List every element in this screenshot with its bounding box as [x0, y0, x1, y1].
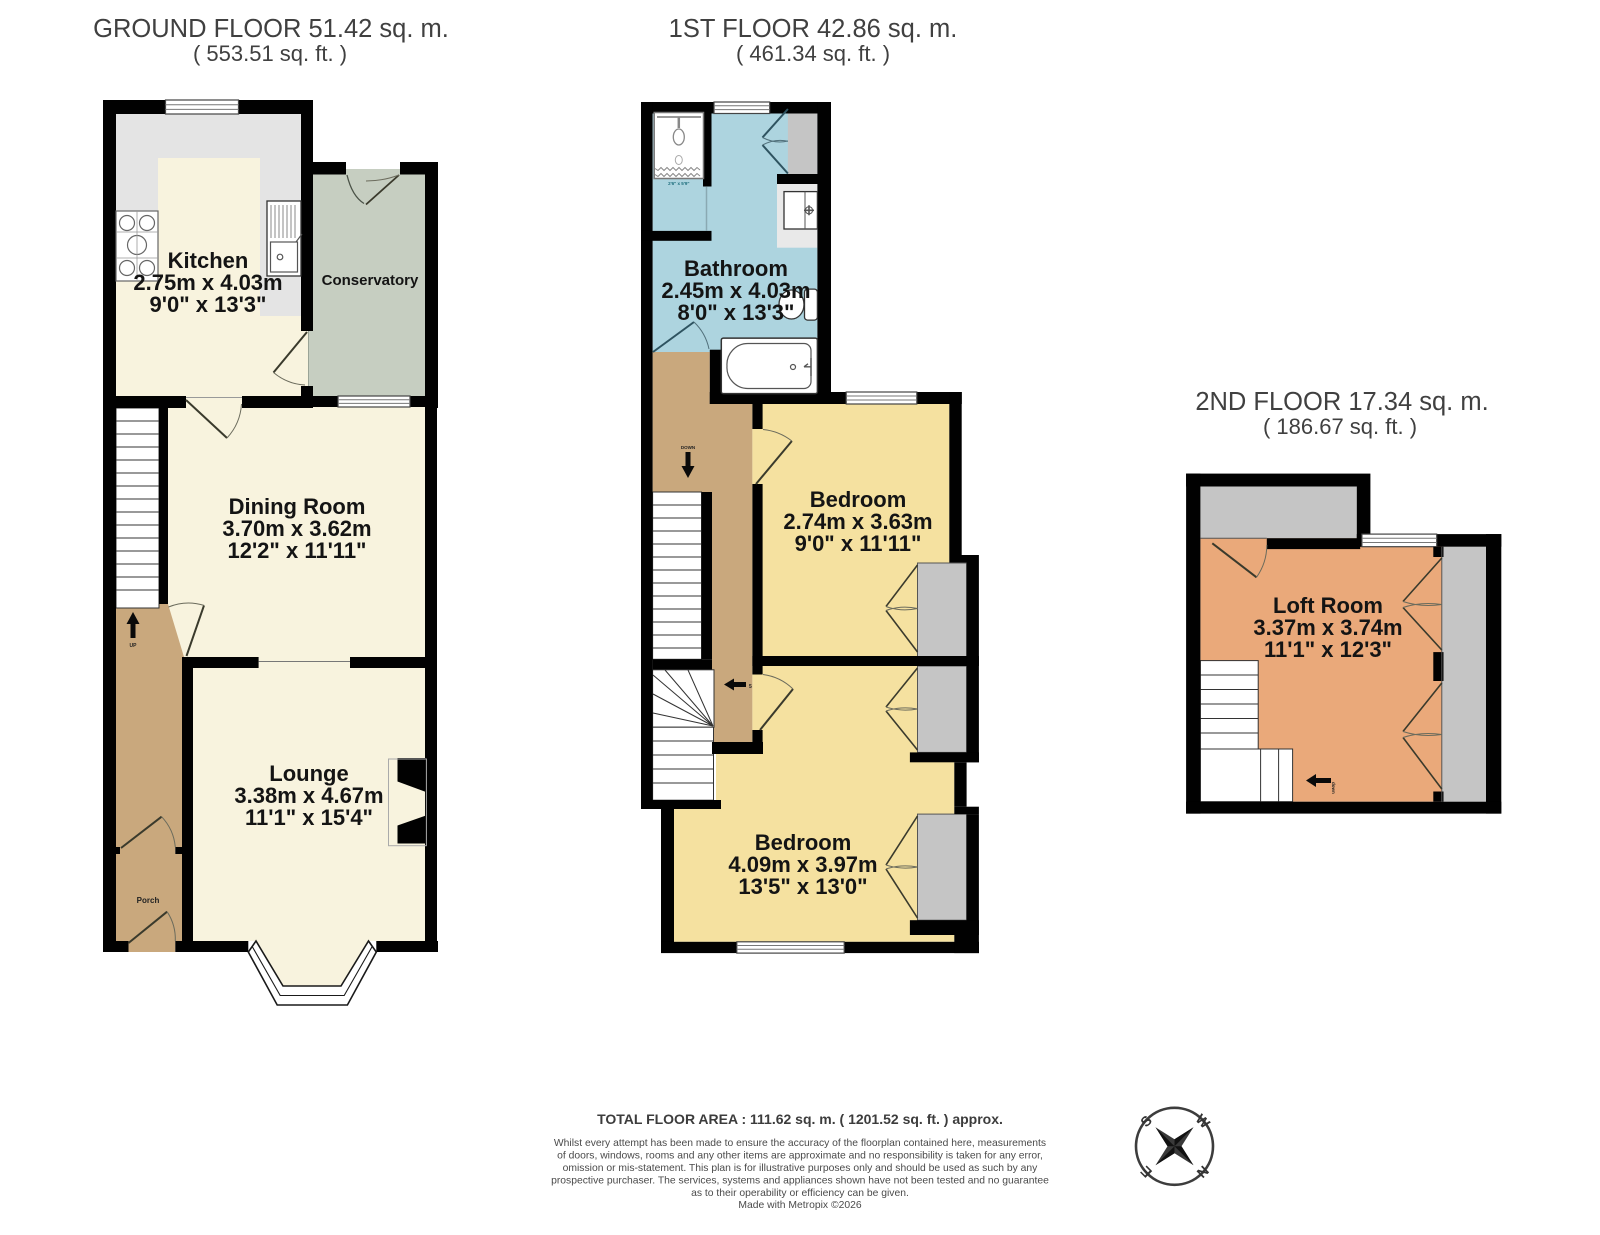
svg-text:UP: UP: [130, 643, 138, 649]
svg-text:8'0" x 13'3": 8'0" x 13'3": [678, 300, 795, 325]
svg-text:5: 5: [749, 684, 752, 690]
svg-text:11'1" x 12'3": 11'1" x 12'3": [1264, 637, 1392, 662]
svg-text:2'6" x 5'9": 2'6" x 5'9": [668, 181, 689, 186]
svg-text:13'5" x 13'0": 13'5" x 13'0": [738, 874, 867, 899]
svg-text:11'1" x 15'4": 11'1" x 15'4": [245, 805, 373, 830]
svg-text:DOWN: DOWN: [681, 445, 695, 450]
svg-text:Whilst every attempt has been: Whilst every attempt has been made to en…: [554, 1138, 1046, 1149]
svg-text:( 186.67 sq. ft. ): ( 186.67 sq. ft. ): [1263, 414, 1417, 439]
svg-text:9'0" x 11'11": 9'0" x 11'11": [795, 531, 922, 556]
svg-text:prospective purchaser. The ser: prospective purchaser. The services, sys…: [551, 1175, 1049, 1186]
svg-text:( 461.34 sq. ft. ): ( 461.34 sq. ft. ): [736, 41, 890, 66]
svg-text:9'0" x 13'3": 9'0" x 13'3": [150, 292, 267, 317]
svg-text:Conservatory: Conservatory: [322, 272, 419, 289]
svg-text:1ST FLOOR 42.86 sq. m.: 1ST FLOOR 42.86 sq. m.: [669, 15, 958, 43]
svg-text:TOTAL FLOOR AREA : 111.62 sq.: TOTAL FLOOR AREA : 111.62 sq. m. ( 1201.…: [597, 1111, 1003, 1127]
svg-text:Made with Metropix ©2026: Made with Metropix ©2026: [738, 1200, 861, 1211]
svg-text:as to their operability or eff: as to their operability or efficiency ca…: [691, 1188, 909, 1199]
svg-text:down: down: [1331, 782, 1336, 794]
svg-text:2ND FLOOR 17.34 sq. m.: 2ND FLOOR 17.34 sq. m.: [1195, 388, 1488, 416]
svg-text:Porch: Porch: [137, 896, 160, 905]
svg-text:( 553.51 sq. ft. ): ( 553.51 sq. ft. ): [193, 41, 347, 66]
svg-text:GROUND FLOOR 51.42 sq. m.: GROUND FLOOR 51.42 sq. m.: [93, 15, 449, 43]
svg-text:12'2" x 11'11": 12'2" x 11'11": [227, 538, 366, 563]
svg-text:omission or mis-statement. Thi: omission or mis-statement. This plan is …: [563, 1163, 1039, 1174]
svg-text:of doors, windows, rooms and a: of doors, windows, rooms and any other i…: [557, 1150, 1043, 1161]
